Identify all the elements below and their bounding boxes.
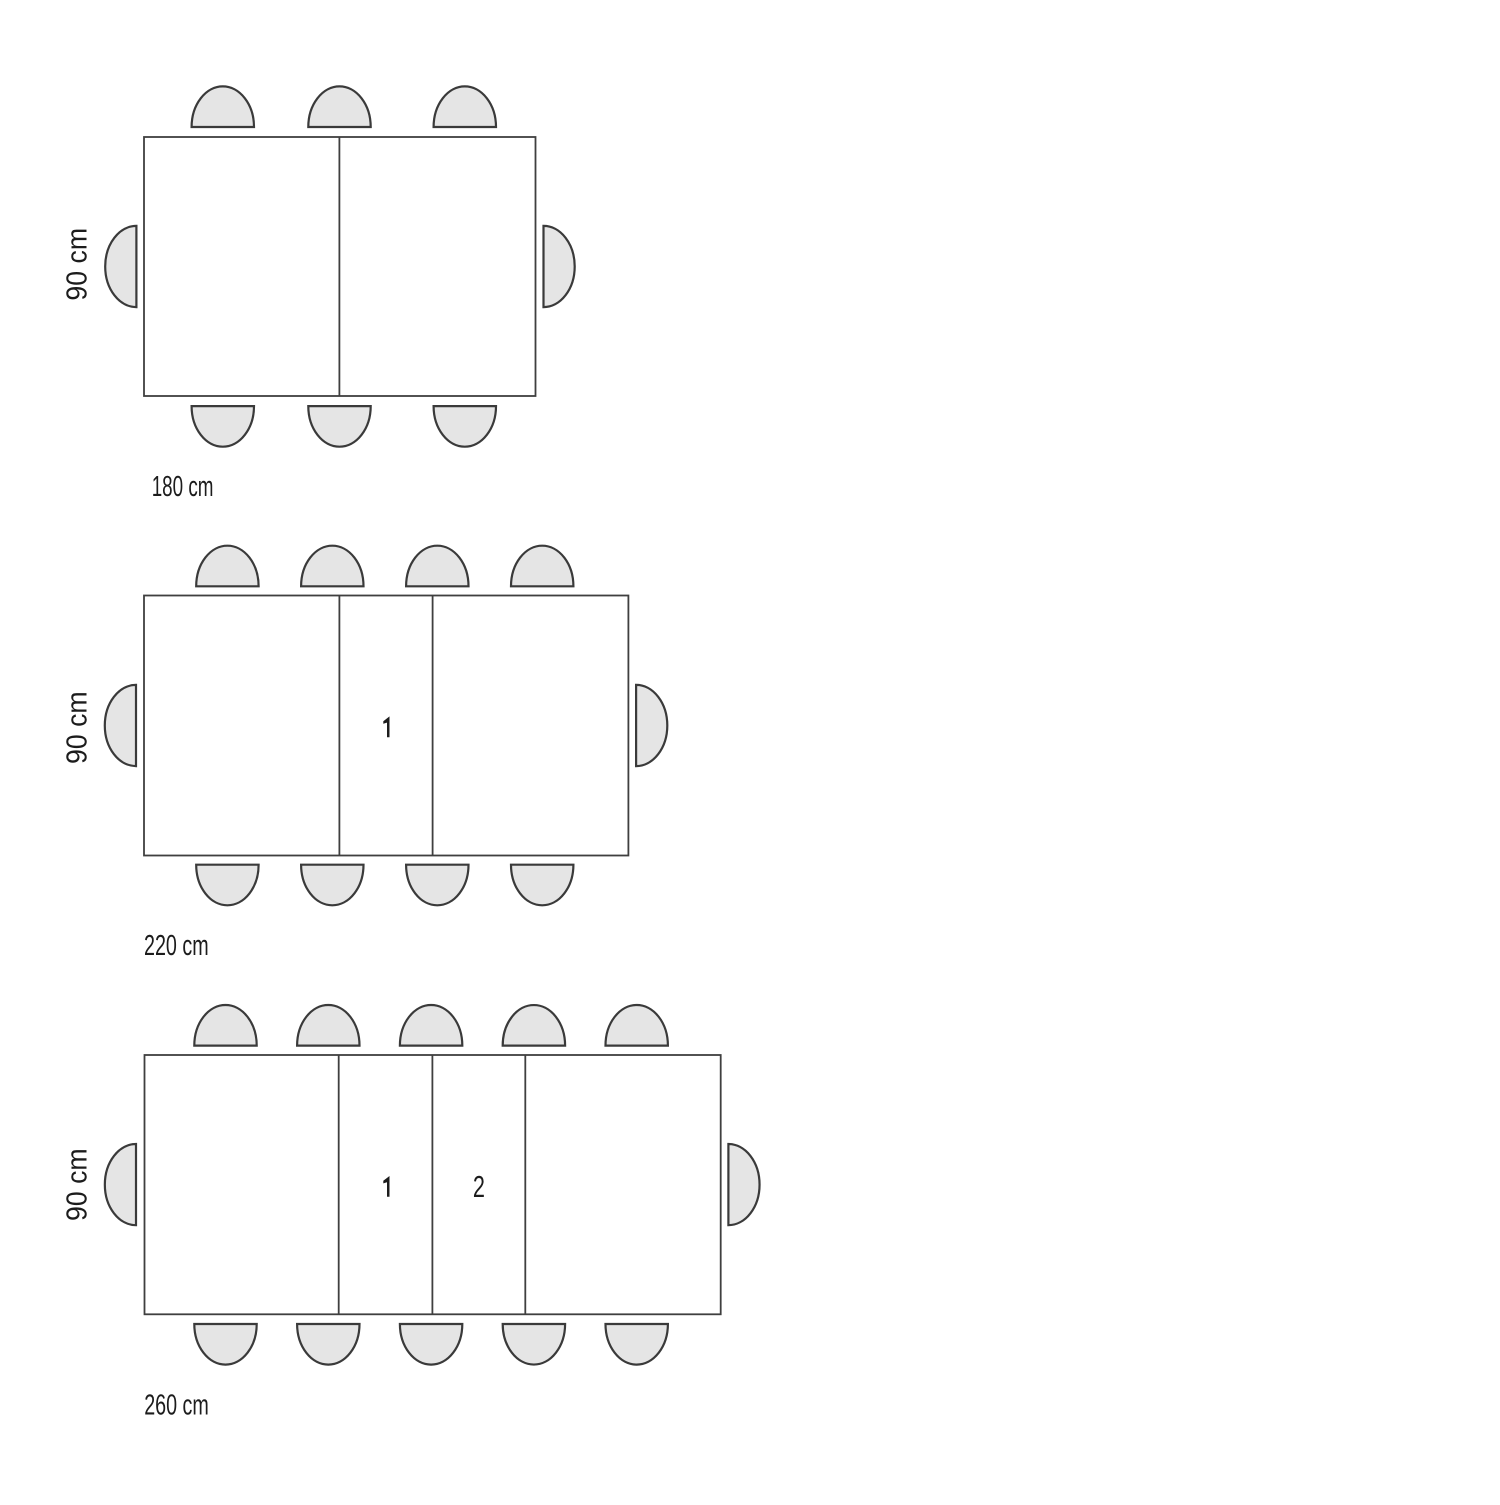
- svg-text:220 cm: 220 cm: [144, 931, 209, 963]
- svg-text:2: 2: [473, 1169, 485, 1204]
- svg-text:90 cm: 90 cm: [60, 691, 92, 764]
- svg-text:180 cm: 180 cm: [152, 471, 214, 503]
- svg-text:90 cm: 90 cm: [60, 228, 92, 301]
- svg-text:90 cm: 90 cm: [60, 1148, 92, 1221]
- svg-text:260 cm: 260 cm: [144, 1390, 209, 1422]
